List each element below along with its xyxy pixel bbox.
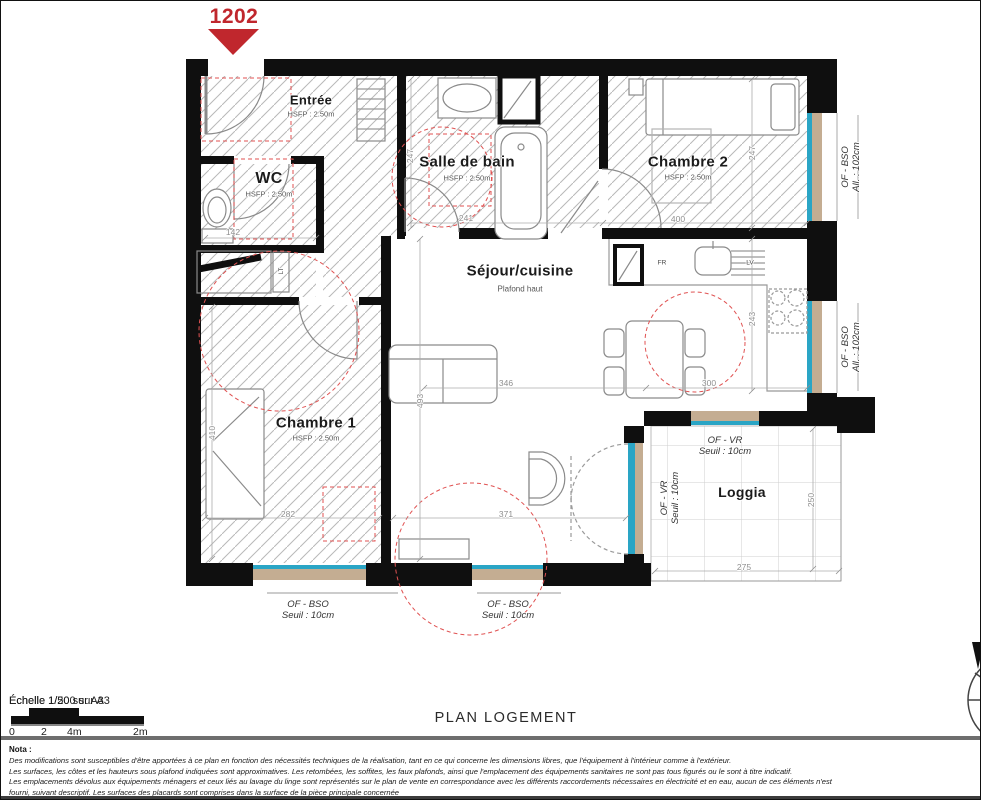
nota-line: Des modifications sont susceptibles d'êt… [9,756,979,767]
window-label-loggia-west: OF - VR Seuil : 10cm [659,472,681,524]
window-label-sejour-south: OF - BSO Seuil : 10cm [482,599,534,621]
appliance-label-laundry: LT [279,268,285,275]
window-label-sejour-east: OF - BSO All. : 102cm [840,322,862,372]
nota-line: Les emplacements dévolus aux équipements… [9,777,979,788]
room-hsfp-chambre1: HSFP : 2.50m [293,434,340,443]
window-type: OF - VR [659,472,670,524]
room-hsfp-wc: HSFP : 2.50m [246,190,293,199]
scale-bar [11,708,144,725]
compass-icon [968,642,981,745]
room-hsfp-chambre2: HSFP : 2.50m [665,173,712,182]
window-detail: Seuil : 10cm [282,610,334,621]
room-note-sejour: Plafond haut [498,285,543,294]
window-type: OF - BSO [282,599,334,610]
dim-sejour-depth: 493 [415,394,425,408]
dim-ch1-width: 282 [281,509,295,519]
room-hsfp-salle-de-bain: HSFP : 2.50m [444,174,491,183]
dim-loggia-depth: 250 [806,493,816,507]
dim-ch1-depth: 410 [207,426,217,440]
window-detail: Seuil : 10cm [482,610,534,621]
bottom-rule [1,796,981,799]
room-label-chambre1: Chambre 1 [276,415,356,432]
footer-divider [1,736,981,740]
window-type: OF - BSO [482,599,534,610]
page-title: PLAN LOGEMENT [435,710,578,726]
window-label-ch2-east: OF - BSO All. : 102cm [840,142,862,192]
room-hsfp-entree: HSFP : 2.50m [288,110,335,119]
dim-loggia-width: 275 [737,562,751,572]
appliance-label-dishwasher: LV [746,260,753,267]
room-label-entree: Entrée [290,93,332,108]
dim-sejour-width: 346 [499,378,513,388]
unit-number: 1202 [210,5,259,29]
dim-sejour-south: 371 [499,509,513,519]
room-label-chambre2: Chambre 2 [648,154,728,171]
window-type: OF - BSO [840,142,851,192]
nota-heading: Nota : [9,745,979,754]
window-detail: All. : 102cm [851,142,862,192]
window-label-loggia-north: OF - VR Seuil : 10cm [699,435,751,457]
room-label-sejour: Séjour/cuisine [467,263,574,280]
unit-arrow-icon [208,29,259,55]
room-label-wc: WC [255,170,282,188]
dim-kitchen-depth: 243 [747,312,757,326]
nota-block: Nota : Des modifications sont susceptibl… [9,745,979,798]
window-detail: Seuil : 10cm [699,446,751,457]
window-label-ch1-south: OF - BSO Seuil : 10cm [282,599,334,621]
room-label-salle-de-bain: Salle de bain [419,154,515,171]
window-detail: All. : 102cm [851,322,862,372]
dim-kitchen-width: 300 [702,378,716,388]
scale-label-b: Échelle 1/200 sur A3 [9,695,110,707]
appliance-label-fridge: FR [658,260,667,267]
nota-line: Les surfaces, les côtes et les hauteurs … [9,767,979,778]
dim-wc-width: 142 [226,227,240,237]
dim-sdb-depth: 247 [405,149,415,163]
dim-sdb-width: 241 [459,213,473,223]
window-detail: Seuil : 10cm [670,472,681,524]
window-type: OF - VR [699,435,751,446]
floorplan-drawing [1,1,981,800]
floorplan-page: 1202 Entrée HSFP : 2.50m WC HSFP : 2.50m… [0,0,981,800]
dim-ch2-width: 400 [671,214,685,224]
room-label-loggia: Loggia [718,484,766,500]
dim-ch2-depth: 247 [747,146,757,160]
window-type: OF - BSO [840,322,851,372]
